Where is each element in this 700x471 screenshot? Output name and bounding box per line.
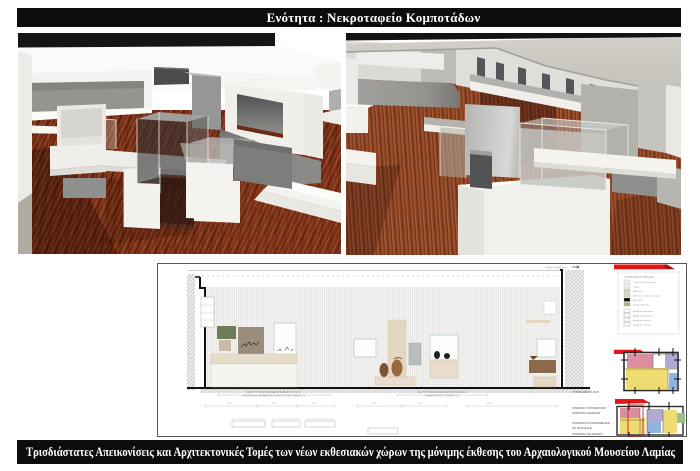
svg-text:ΥΠΟΜΝΗΜΑ ΣΥΜΒΟΛΩΝ: ΥΠΟΜΝΗΜΑ ΣΥΜΒΟΛΩΝ xyxy=(624,276,654,279)
svg-text:ΣΕ ΠΡΟΘΗΚΗ: ΣΕ ΠΡΟΘΗΚΗ xyxy=(572,426,592,430)
svg-text:4.20: 4.20 xyxy=(227,403,232,405)
svg-text:ΧΡΩΜΙΚΟΙ ΒΑΘΡΩΝ: ΧΡΩΜΙΚΟΙ ΒΑΘΡΩΝ xyxy=(572,411,600,415)
svg-text:3.65: 3.65 xyxy=(272,403,277,405)
svg-text:2.45: 2.45 xyxy=(417,403,422,405)
svg-text:Αρίθμηση προθηκών: Αρίθμηση προθηκών xyxy=(633,315,654,318)
svg-text:ΧΡΩΜΙΚΟΙ ΣΕ ΒΑΘΡΟ: ΧΡΩΜΙΚΟΙ ΣΕ ΒΑΘΡΟ xyxy=(572,432,603,436)
svg-text:ΤΥΠΟΣ ΕΝΟΤΗΤΑΣ: ΤΥΠΟΣ ΕΝΟΤΗΤΑΣ xyxy=(572,390,599,394)
svg-text:Αρίθμηση πινάκων: Αρίθμηση πινάκων xyxy=(633,324,652,327)
svg-text:RAL 7021: RAL 7021 xyxy=(633,299,643,302)
svg-text:ΑΝΑΠΤΥΓΜΑ ΕΚΘΕΣΙΑΚΗΣ ΕΠΙΦΑΝΕΙΑ: ΑΝΑΠΤΥΓΜΑ ΕΚΘΕΣΙΑΚΗΣ ΕΠΙΦΑΝΕΙΑΣ xyxy=(417,390,467,394)
svg-text:4.05: 4.05 xyxy=(487,403,492,405)
svg-text:2.10: 2.10 xyxy=(312,403,317,405)
svg-text:ΧΡΩΜΙΚΟΙ ΑΝΤΙΚΕΙΜΕΝΩΝ: ΧΡΩΜΙΚΟΙ ΑΝΤΙΚΕΙΜΕΝΩΝ xyxy=(572,421,610,425)
svg-text:RAL 9001: RAL 9001 xyxy=(633,290,643,293)
svg-text:ΑΠΕΙΚΟΝΙΣΗ ΕΚΘΕΣΙΑΚΩΝ ΕΝΟΤΗΤΩΝ: ΑΠΕΙΚΟΝΙΣΗ ΕΚΘΕΣΙΑΚΩΝ ΕΝΟΤΗΤΩΝ ΤΜΗΜΑ 2.1 xyxy=(243,394,306,398)
svg-text:Αρίθμηση εκθεμάτων: Αρίθμηση εκθεμάτων xyxy=(633,310,654,313)
svg-text:Τοιχοποιία Υπάρχουσα: Τοιχοποιία Υπάρχουσα xyxy=(633,281,656,284)
svg-text:ΧΡΩΜΙΚΟΙ ΠΡΟΣΩΡΙΝΟΙ: ΧΡΩΜΙΚΟΙ ΠΡΟΣΩΡΙΝΟΙ xyxy=(572,406,606,410)
svg-text:ΑΨΙΔΑ ΤΟΜΗ Α-Α: ΑΨΙΔΑ ΤΟΜΗ Α-Α xyxy=(545,266,566,270)
svg-text:Γύψος: Γύψος xyxy=(633,286,639,289)
svg-text:ΑΝΑΠΤΥΓΜΑ ΕΠΙΦΑΝΕΙΩΝ ΒΟΡΕΙΟΥ Τ: ΑΝΑΠΤΥΓΜΑ ΕΠΙΦΑΝΕΙΩΝ ΒΟΡΕΙΟΥ ΤΟΙΧΟΥ xyxy=(246,390,301,394)
svg-text:3.10: 3.10 xyxy=(372,403,377,405)
svg-text:MDF με επένδυση καπλαμά: MDF με επένδυση καπλαμά xyxy=(633,295,661,298)
svg-text:Αρίθμηση βάθρων: Αρίθμηση βάθρων xyxy=(633,319,652,322)
svg-text:ΤΜΗΜΑ ΝΟΤΙΟΥ ΤΟΙΧΟΥ 2.2: ΤΜΗΜΑ ΝΟΤΙΟΥ ΤΟΙΧΟΥ 2.2 xyxy=(425,394,460,398)
svg-text:Πάτωμα δάπεδο: Πάτωμα δάπεδο xyxy=(633,304,650,307)
